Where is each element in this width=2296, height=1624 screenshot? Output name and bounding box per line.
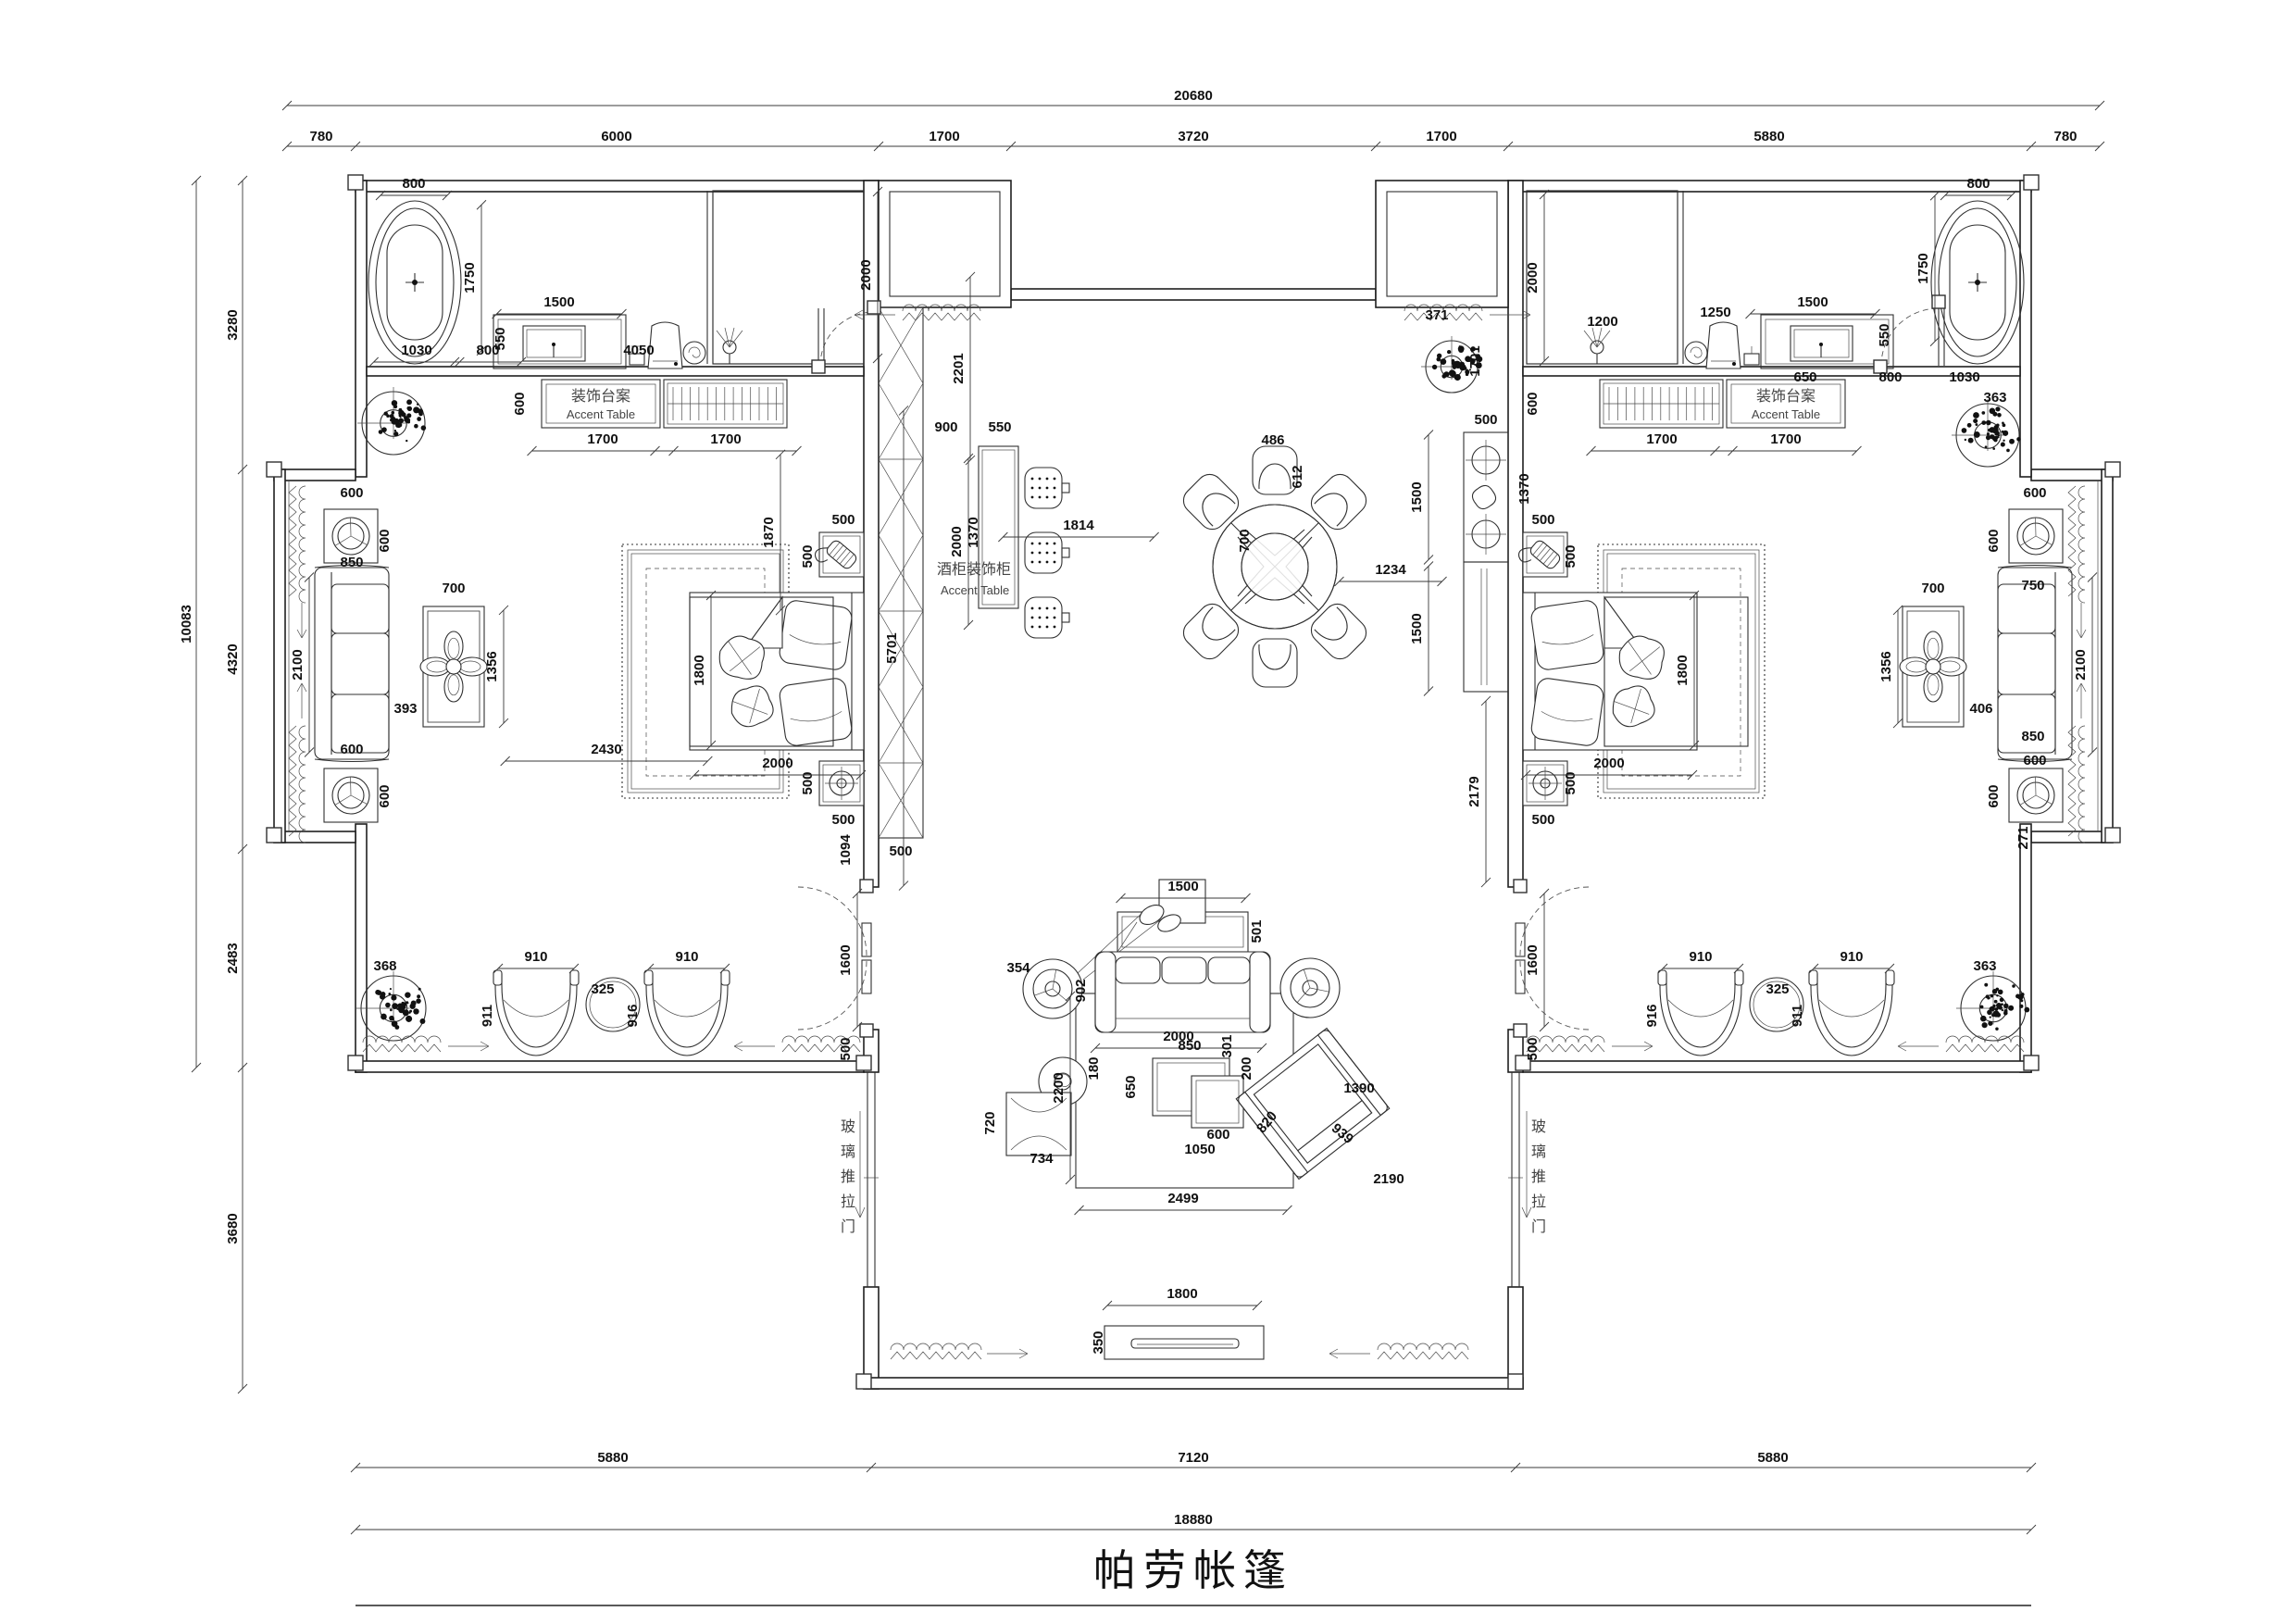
svg-text:1700: 1700 [1770, 431, 1801, 447]
svg-text:2190: 2190 [1373, 1171, 1404, 1187]
svg-text:璃: 璃 [1531, 1143, 1546, 1160]
svg-text:734: 734 [1029, 1151, 1054, 1167]
accent-table-label-right-en: Accent Table [1752, 407, 1820, 421]
svg-text:363: 363 [1983, 390, 2006, 406]
svg-text:1750: 1750 [1915, 253, 1931, 283]
svg-text:1800: 1800 [692, 655, 707, 685]
svg-text:911: 911 [480, 1005, 495, 1027]
floor-plan-page: 2068078060001700372017005880780100833280… [0, 0, 2296, 1624]
svg-text:门: 门 [1531, 1218, 1546, 1235]
svg-text:850: 850 [340, 555, 363, 570]
svg-text:1500: 1500 [1797, 294, 1828, 310]
walls [267, 175, 2120, 1389]
svg-text:2100: 2100 [2073, 649, 2089, 680]
svg-text:406: 406 [1969, 701, 1992, 717]
svg-text:780: 780 [2053, 129, 2077, 144]
svg-text:3720: 3720 [1178, 129, 1208, 144]
svg-text:850: 850 [1178, 1038, 1201, 1054]
svg-text:910: 910 [675, 949, 698, 965]
svg-text:500: 500 [1531, 812, 1554, 828]
svg-text:325: 325 [1766, 981, 1789, 997]
svg-text:2100: 2100 [290, 649, 306, 680]
drawing-title: 帕劳帐篷 [1093, 1547, 1293, 1594]
svg-text:7120: 7120 [1178, 1450, 1208, 1466]
svg-text:902: 902 [1073, 979, 1089, 1002]
svg-text:门: 门 [841, 1218, 855, 1235]
svg-text:700: 700 [1237, 529, 1253, 552]
svg-text:500: 500 [1474, 412, 1497, 428]
svg-text:1814: 1814 [1063, 518, 1094, 533]
dimensions: 2068078060001700372017005880780100833280… [179, 88, 2104, 1534]
svg-text:拉: 拉 [841, 1193, 855, 1210]
svg-text:200: 200 [1239, 1056, 1254, 1080]
svg-text:650: 650 [1793, 369, 1816, 385]
svg-text:1370: 1370 [966, 517, 981, 547]
svg-text:1500: 1500 [543, 294, 574, 310]
svg-text:500: 500 [1563, 544, 1578, 568]
svg-text:911: 911 [1790, 1005, 1805, 1027]
svg-text:1500: 1500 [1409, 613, 1425, 643]
svg-text:486: 486 [1261, 432, 1284, 448]
svg-text:1600: 1600 [838, 944, 854, 975]
svg-text:2000: 2000 [1593, 756, 1624, 771]
svg-text:2200: 2200 [1051, 1072, 1067, 1103]
svg-text:5880: 5880 [1753, 129, 1784, 144]
svg-text:2000: 2000 [949, 526, 965, 556]
svg-text:750: 750 [2021, 578, 2044, 593]
svg-text:2000: 2000 [858, 259, 874, 290]
svg-text:推: 推 [1531, 1168, 1546, 1185]
svg-text:600: 600 [340, 485, 363, 501]
svg-text:1250: 1250 [1700, 305, 1730, 320]
svg-text:271: 271 [2015, 826, 2031, 849]
svg-text:璃: 璃 [841, 1143, 855, 1160]
svg-text:1750: 1750 [462, 262, 478, 293]
svg-text:1356: 1356 [484, 651, 500, 681]
svg-text:600: 600 [1525, 392, 1541, 415]
svg-text:600: 600 [340, 742, 363, 757]
svg-text:600: 600 [2023, 753, 2046, 768]
svg-text:2000: 2000 [762, 756, 792, 771]
svg-text:916: 916 [1644, 1004, 1660, 1027]
accent-table-label-right-cn: 装饰台案 [1756, 388, 1816, 405]
svg-text:900: 900 [934, 419, 957, 435]
svg-text:2179: 2179 [1466, 776, 1482, 806]
svg-text:1234: 1234 [1375, 562, 1406, 578]
floor-plan-drawing: 2068078060001700372017005880780100833280… [0, 0, 2296, 1624]
svg-text:4050: 4050 [623, 343, 654, 358]
svg-text:1050: 1050 [1184, 1142, 1215, 1157]
svg-text:推: 推 [841, 1168, 855, 1185]
svg-text:10083: 10083 [179, 605, 194, 643]
svg-text:1700: 1700 [929, 129, 959, 144]
svg-text:500: 500 [800, 544, 816, 568]
svg-text:20680: 20680 [1174, 88, 1213, 104]
svg-text:1870: 1870 [761, 517, 777, 547]
svg-text:612: 612 [1290, 465, 1305, 488]
svg-text:1700: 1700 [1646, 431, 1677, 447]
accent-table-label-left-cn: 装饰台案 [571, 388, 630, 405]
svg-text:371: 371 [1425, 307, 1448, 323]
svg-text:玻: 玻 [841, 1118, 855, 1135]
svg-text:600: 600 [1986, 529, 2002, 552]
svg-text:350: 350 [1091, 1330, 1106, 1354]
svg-text:910: 910 [524, 949, 547, 965]
svg-text:2430: 2430 [591, 742, 621, 757]
svg-text:18880: 18880 [1174, 1512, 1213, 1528]
svg-text:700: 700 [442, 581, 465, 596]
svg-text:1700: 1700 [710, 431, 741, 447]
svg-text:650: 650 [1123, 1075, 1139, 1098]
svg-text:600: 600 [2023, 485, 2046, 501]
svg-text:500: 500 [889, 843, 912, 859]
svg-text:500: 500 [831, 512, 855, 528]
svg-text:363: 363 [1973, 958, 1996, 974]
svg-text:1030: 1030 [401, 343, 431, 358]
svg-text:600: 600 [1206, 1127, 1229, 1143]
svg-text:180: 180 [1086, 1056, 1102, 1080]
svg-text:325: 325 [591, 981, 614, 997]
svg-text:1030: 1030 [1949, 369, 1979, 385]
svg-text:500: 500 [1531, 512, 1554, 528]
svg-text:720: 720 [982, 1111, 998, 1134]
glass-sliding-door-label-right: 玻璃推拉门 [1522, 1111, 1546, 1235]
svg-text:3280: 3280 [225, 309, 241, 340]
svg-text:6000: 6000 [601, 129, 631, 144]
svg-text:5880: 5880 [597, 1450, 628, 1466]
svg-text:916: 916 [625, 1004, 641, 1027]
svg-text:550: 550 [988, 419, 1011, 435]
svg-text:500: 500 [831, 812, 855, 828]
svg-text:1701: 1701 [1467, 345, 1483, 376]
svg-text:拉: 拉 [1531, 1193, 1546, 1210]
svg-text:368: 368 [373, 958, 396, 974]
svg-text:1356: 1356 [1878, 651, 1894, 681]
svg-text:910: 910 [1689, 949, 1712, 965]
svg-text:500: 500 [838, 1037, 854, 1060]
svg-text:1600: 1600 [1525, 944, 1541, 975]
svg-text:780: 780 [309, 129, 332, 144]
svg-text:800: 800 [1878, 369, 1902, 385]
svg-text:550: 550 [1877, 323, 1892, 346]
svg-text:1800: 1800 [1675, 655, 1691, 685]
svg-text:2483: 2483 [225, 943, 241, 973]
accent-table-label-left-en: Accent Table [567, 407, 635, 421]
svg-text:700: 700 [1921, 581, 1944, 596]
svg-text:354: 354 [1006, 960, 1030, 976]
svg-text:3680: 3680 [225, 1213, 241, 1243]
svg-text:850: 850 [2021, 729, 2044, 744]
svg-text:5880: 5880 [1757, 1450, 1788, 1466]
glass-sliding-door-label-left: 玻璃推拉门 [841, 1111, 865, 1235]
wine-cabinet-label-cn: 酒柜装饰柜 [937, 561, 1011, 578]
svg-text:1500: 1500 [1409, 481, 1425, 512]
svg-text:1200: 1200 [1587, 314, 1617, 330]
svg-text:1800: 1800 [1167, 1286, 1197, 1302]
svg-text:600: 600 [1986, 784, 2002, 807]
svg-text:5701: 5701 [884, 632, 900, 663]
svg-text:1500: 1500 [1167, 879, 1198, 894]
svg-text:600: 600 [512, 392, 528, 415]
svg-text:1094: 1094 [838, 834, 854, 866]
svg-text:301: 301 [1219, 1034, 1235, 1057]
svg-text:800: 800 [1966, 176, 1990, 192]
svg-text:600: 600 [377, 784, 393, 807]
svg-text:2499: 2499 [1167, 1191, 1198, 1206]
svg-text:550: 550 [493, 327, 508, 350]
svg-text:600: 600 [377, 529, 393, 552]
svg-text:2201: 2201 [951, 353, 967, 383]
svg-text:玻: 玻 [1531, 1118, 1546, 1135]
svg-text:910: 910 [1840, 949, 1863, 965]
svg-text:1390: 1390 [1343, 1081, 1374, 1096]
svg-text:2000: 2000 [1525, 262, 1541, 293]
svg-text:501: 501 [1249, 919, 1265, 943]
svg-text:1700: 1700 [587, 431, 618, 447]
svg-text:4320: 4320 [225, 643, 241, 674]
svg-text:800: 800 [402, 176, 425, 192]
svg-text:1700: 1700 [1426, 129, 1456, 144]
svg-text:500: 500 [1525, 1037, 1541, 1060]
svg-text:1370: 1370 [1516, 473, 1532, 504]
wine-cabinet-label-en: Accent Table [941, 583, 1009, 597]
svg-text:393: 393 [393, 701, 417, 717]
